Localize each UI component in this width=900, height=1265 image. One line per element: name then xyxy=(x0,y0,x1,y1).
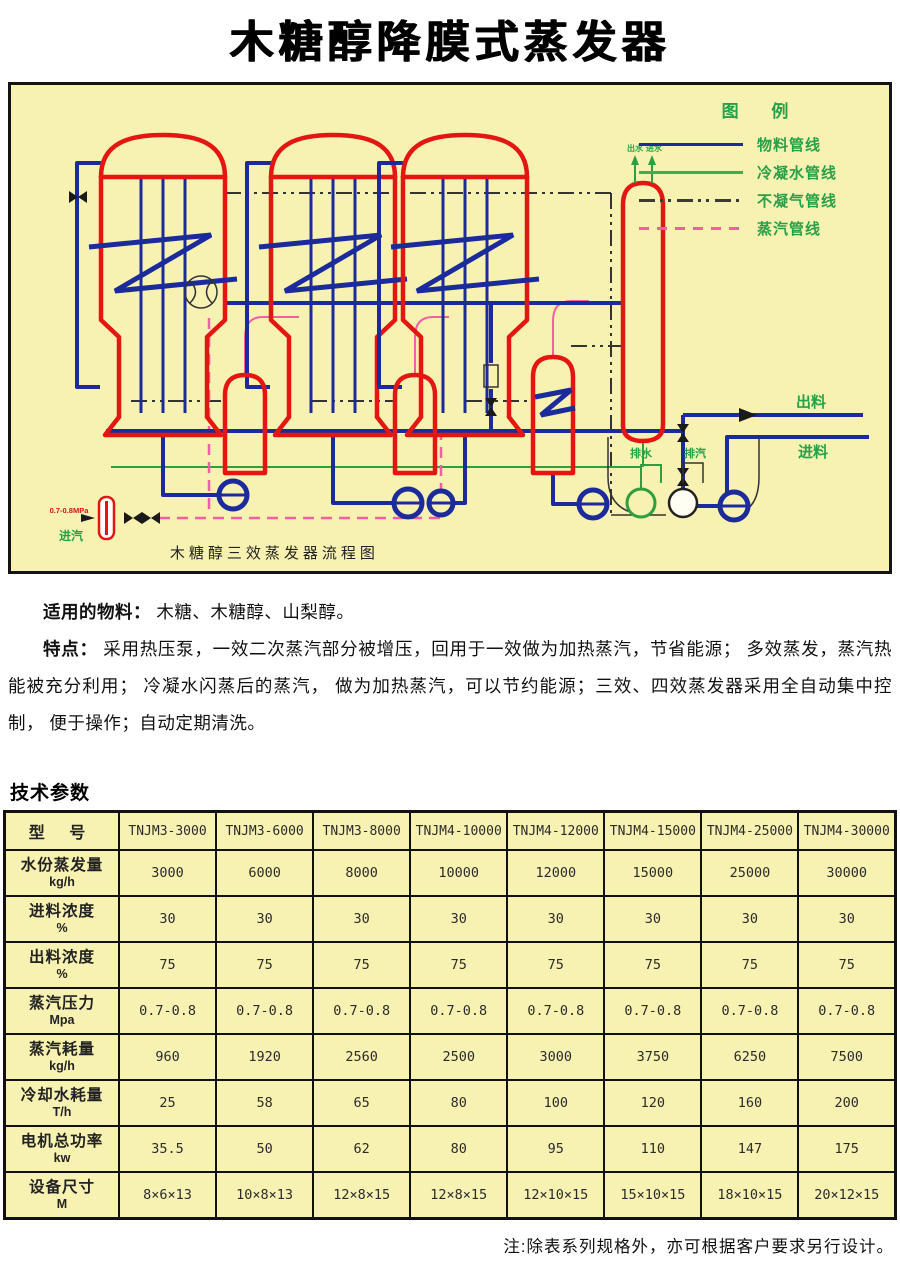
legend-item: 不凝气管线 xyxy=(639,186,885,214)
spec-table-row: 进料浓度%3030303030303030 xyxy=(5,896,896,942)
row-name: 蒸汽压力 xyxy=(6,994,118,1013)
row-unit: Mpa xyxy=(6,1013,118,1028)
diagram-caption: 木糖醇三效蒸发器流程图 xyxy=(11,542,538,563)
row-unit: kg/h xyxy=(6,875,118,890)
row-label-cell: 电机总功率kw xyxy=(5,1126,120,1172)
row-label-cell: 水份蒸发量kg/h xyxy=(5,850,120,896)
specs-heading: 技术参数 xyxy=(10,778,90,805)
row-name: 蒸汽耗量 xyxy=(6,1040,118,1059)
model-header-cell: TNJM4-12000 xyxy=(507,812,604,851)
spec-table-row: 出料浓度%7575757575757575 xyxy=(5,942,896,988)
value-cell: 75 xyxy=(798,942,895,988)
legend-line-solid xyxy=(639,143,743,146)
spec-table-row: 设备尺寸M8×6×1310×8×1312×8×1512×8×1512×10×15… xyxy=(5,1172,896,1219)
spec-table-row: 蒸汽耗量kg/h9601920256025003000375062507500 xyxy=(5,1034,896,1080)
value-cell: 3750 xyxy=(604,1034,701,1080)
value-cell: 75 xyxy=(216,942,313,988)
legend-label: 蒸汽管线 xyxy=(757,218,821,239)
value-cell: 12×10×15 xyxy=(507,1172,604,1219)
steam-in-label: 进汽 xyxy=(59,528,83,543)
features-text: 采用热压泵，一效二次蒸汽部分被增压，回用于一效做为加热蒸汽，节省能源； 多效蒸发… xyxy=(8,639,892,733)
value-cell: 35.5 xyxy=(119,1126,216,1172)
row-label-cell: 蒸汽压力Mpa xyxy=(5,988,120,1034)
value-cell: 50 xyxy=(216,1126,313,1172)
value-cell: 30 xyxy=(701,896,798,942)
features-label: 特点： xyxy=(43,639,98,659)
footer-note: 注:除表系列规格外，亦可根据客户要求另行设计。 xyxy=(503,1233,894,1257)
steam-inlet-gauge: 0.7-0.8MPa 进汽 xyxy=(50,497,114,543)
value-cell: 62 xyxy=(313,1126,410,1172)
value-cell: 175 xyxy=(798,1126,895,1172)
value-cell: 100 xyxy=(507,1080,604,1126)
spec-table-header-row: 型 号TNJM3-3000TNJM3-6000TNJM3-8000TNJM4-1… xyxy=(5,812,896,851)
value-cell: 6250 xyxy=(701,1034,798,1080)
page-title: 木糖醇降膜式蒸发器 xyxy=(0,6,900,70)
model-header-cell: TNJM4-10000 xyxy=(410,812,507,851)
value-cell: 200 xyxy=(798,1080,895,1126)
value-cell: 0.7-0.8 xyxy=(216,988,313,1034)
value-cell: 75 xyxy=(410,942,507,988)
inlet-label: 进料 xyxy=(798,443,828,461)
value-cell: 25000 xyxy=(701,850,798,896)
value-cell: 75 xyxy=(701,942,798,988)
legend: 图 例 物料管线冷凝水管线不凝气管线蒸汽管线 xyxy=(639,97,885,242)
value-cell: 12000 xyxy=(507,850,604,896)
value-cell: 65 xyxy=(313,1080,410,1126)
value-cell: 110 xyxy=(604,1126,701,1172)
row-label-cell: 设备尺寸M xyxy=(5,1172,120,1219)
model-header-cell: TNJM4-15000 xyxy=(604,812,701,851)
steam-pressure-label: 0.7-0.8MPa xyxy=(50,506,90,515)
row-unit: % xyxy=(6,967,118,982)
legend-label: 物料管线 xyxy=(757,134,821,155)
legend-title: 图 例 xyxy=(639,97,885,122)
value-cell: 12×8×15 xyxy=(313,1172,410,1219)
legend-item: 物料管线 xyxy=(639,130,885,158)
pump-icons xyxy=(219,481,748,520)
row-unit: kg/h xyxy=(6,1059,118,1074)
value-cell: 10000 xyxy=(410,850,507,896)
row-label-cell: 出料浓度% xyxy=(5,942,120,988)
value-cell: 75 xyxy=(313,942,410,988)
value-cell: 80 xyxy=(410,1126,507,1172)
value-cell: 20×12×15 xyxy=(798,1172,895,1219)
row-name: 电机总功率 xyxy=(6,1132,118,1151)
value-cell: 25 xyxy=(119,1080,216,1126)
legend-line-dashed xyxy=(639,227,743,230)
legend-line-dashdot xyxy=(639,199,743,202)
model-header-cell: TNJM4-25000 xyxy=(701,812,798,851)
condensate-lines xyxy=(111,443,661,489)
value-cell: 30000 xyxy=(798,850,895,896)
materials-label: 适用的物料： xyxy=(43,602,151,622)
evaporator-effect-1 xyxy=(77,135,237,435)
value-cell: 160 xyxy=(701,1080,798,1126)
value-cell: 95 xyxy=(507,1126,604,1172)
process-flow-diagram: 出水 进水 xyxy=(8,82,892,574)
value-cell: 7500 xyxy=(798,1034,895,1080)
value-cell: 30 xyxy=(798,896,895,942)
row-name: 出料浓度 xyxy=(6,948,118,967)
value-cell: 0.7-0.8 xyxy=(119,988,216,1034)
row-unit: kw xyxy=(6,1151,118,1166)
value-cell: 12×8×15 xyxy=(410,1172,507,1219)
value-cell: 30 xyxy=(604,896,701,942)
drain-label: 排水 xyxy=(630,446,653,460)
value-cell: 8×6×13 xyxy=(119,1172,216,1219)
value-cell: 1920 xyxy=(216,1034,313,1080)
vent-label: 排汽 xyxy=(684,446,706,460)
materials-paragraph: 适用的物料： 木糖、木糖醇、山梨醇。 xyxy=(8,594,892,631)
model-header-cell: TNJM3-8000 xyxy=(313,812,410,851)
row-label-cell: 蒸汽耗量kg/h xyxy=(5,1034,120,1080)
spec-table-row: 冷却水耗量T/h25586580100120160200 xyxy=(5,1080,896,1126)
spec-table-row: 蒸汽压力Mpa0.7-0.80.7-0.80.7-0.80.7-0.80.7-0… xyxy=(5,988,896,1034)
row-name: 冷却水耗量 xyxy=(6,1086,118,1105)
value-cell: 2500 xyxy=(410,1034,507,1080)
value-cell: 58 xyxy=(216,1080,313,1126)
value-cell: 0.7-0.8 xyxy=(313,988,410,1034)
value-cell: 3000 xyxy=(507,1034,604,1080)
value-cell: 0.7-0.8 xyxy=(410,988,507,1034)
outlet-label: 出料 xyxy=(796,393,826,411)
value-cell: 80 xyxy=(410,1080,507,1126)
model-header-cell: TNJM3-3000 xyxy=(119,812,216,851)
value-cell: 0.7-0.8 xyxy=(507,988,604,1034)
row-unit: T/h xyxy=(6,1105,118,1120)
value-cell: 6000 xyxy=(216,850,313,896)
separator-vessels xyxy=(225,357,575,473)
row-name: 水份蒸发量 xyxy=(6,856,118,875)
value-cell: 0.7-0.8 xyxy=(604,988,701,1034)
evaporator-effect-3 xyxy=(379,135,539,435)
legend-label: 不凝气管线 xyxy=(757,190,837,211)
features-paragraph: 特点： 采用热压泵，一效二次蒸汽部分被增压，回用于一效做为加热蒸汽，节省能源； … xyxy=(8,631,892,742)
value-cell: 75 xyxy=(604,942,701,988)
model-header-cell: TNJM3-6000 xyxy=(216,812,313,851)
value-cell: 18×10×15 xyxy=(701,1172,798,1219)
spec-table-row: 电机总功率kw35.550628095110147175 xyxy=(5,1126,896,1172)
row-name: 进料浓度 xyxy=(6,902,118,921)
value-cell: 960 xyxy=(119,1034,216,1080)
legend-item: 蒸汽管线 xyxy=(639,214,885,242)
value-cell: 30 xyxy=(216,896,313,942)
intro-text: 适用的物料： 木糖、木糖醇、山梨醇。 特点： 采用热压泵，一效二次蒸汽部分被增压… xyxy=(8,594,892,742)
value-cell: 15000 xyxy=(604,850,701,896)
legend-label: 冷凝水管线 xyxy=(757,162,837,183)
spec-table: 型 号TNJM3-3000TNJM3-6000TNJM3-8000TNJM4-1… xyxy=(3,810,897,1220)
value-cell: 75 xyxy=(119,942,216,988)
value-cell: 147 xyxy=(701,1126,798,1172)
row-name: 设备尺寸 xyxy=(6,1178,118,1197)
row-label-cell: 冷却水耗量T/h xyxy=(5,1080,120,1126)
row-unit: % xyxy=(6,921,118,936)
evaporator-effect-2 xyxy=(247,135,407,435)
materials-text: 木糖、木糖醇、山梨醇。 xyxy=(151,602,354,622)
value-cell: 0.7-0.8 xyxy=(701,988,798,1034)
value-cell: 30 xyxy=(119,896,216,942)
document-page: 木糖醇降膜式蒸发器 xyxy=(0,0,900,1265)
value-cell: 30 xyxy=(507,896,604,942)
value-cell: 120 xyxy=(604,1080,701,1126)
value-cell: 10×8×13 xyxy=(216,1172,313,1219)
row-unit: M xyxy=(6,1197,118,1212)
value-cell: 8000 xyxy=(313,850,410,896)
model-header-cell: TNJM4-30000 xyxy=(798,812,895,851)
value-cell: 30 xyxy=(313,896,410,942)
spec-table-row: 水份蒸发量kg/h3000600080001000012000150002500… xyxy=(5,850,896,896)
value-cell: 3000 xyxy=(119,850,216,896)
value-cell: 2560 xyxy=(313,1034,410,1080)
value-cell: 30 xyxy=(410,896,507,942)
legend-item: 冷凝水管线 xyxy=(639,158,885,186)
model-column-header: 型 号 xyxy=(5,812,120,851)
row-label-cell: 进料浓度% xyxy=(5,896,120,942)
legend-line-solid xyxy=(639,171,743,174)
value-cell: 75 xyxy=(507,942,604,988)
value-cell: 15×10×15 xyxy=(604,1172,701,1219)
value-cell: 0.7-0.8 xyxy=(798,988,895,1034)
